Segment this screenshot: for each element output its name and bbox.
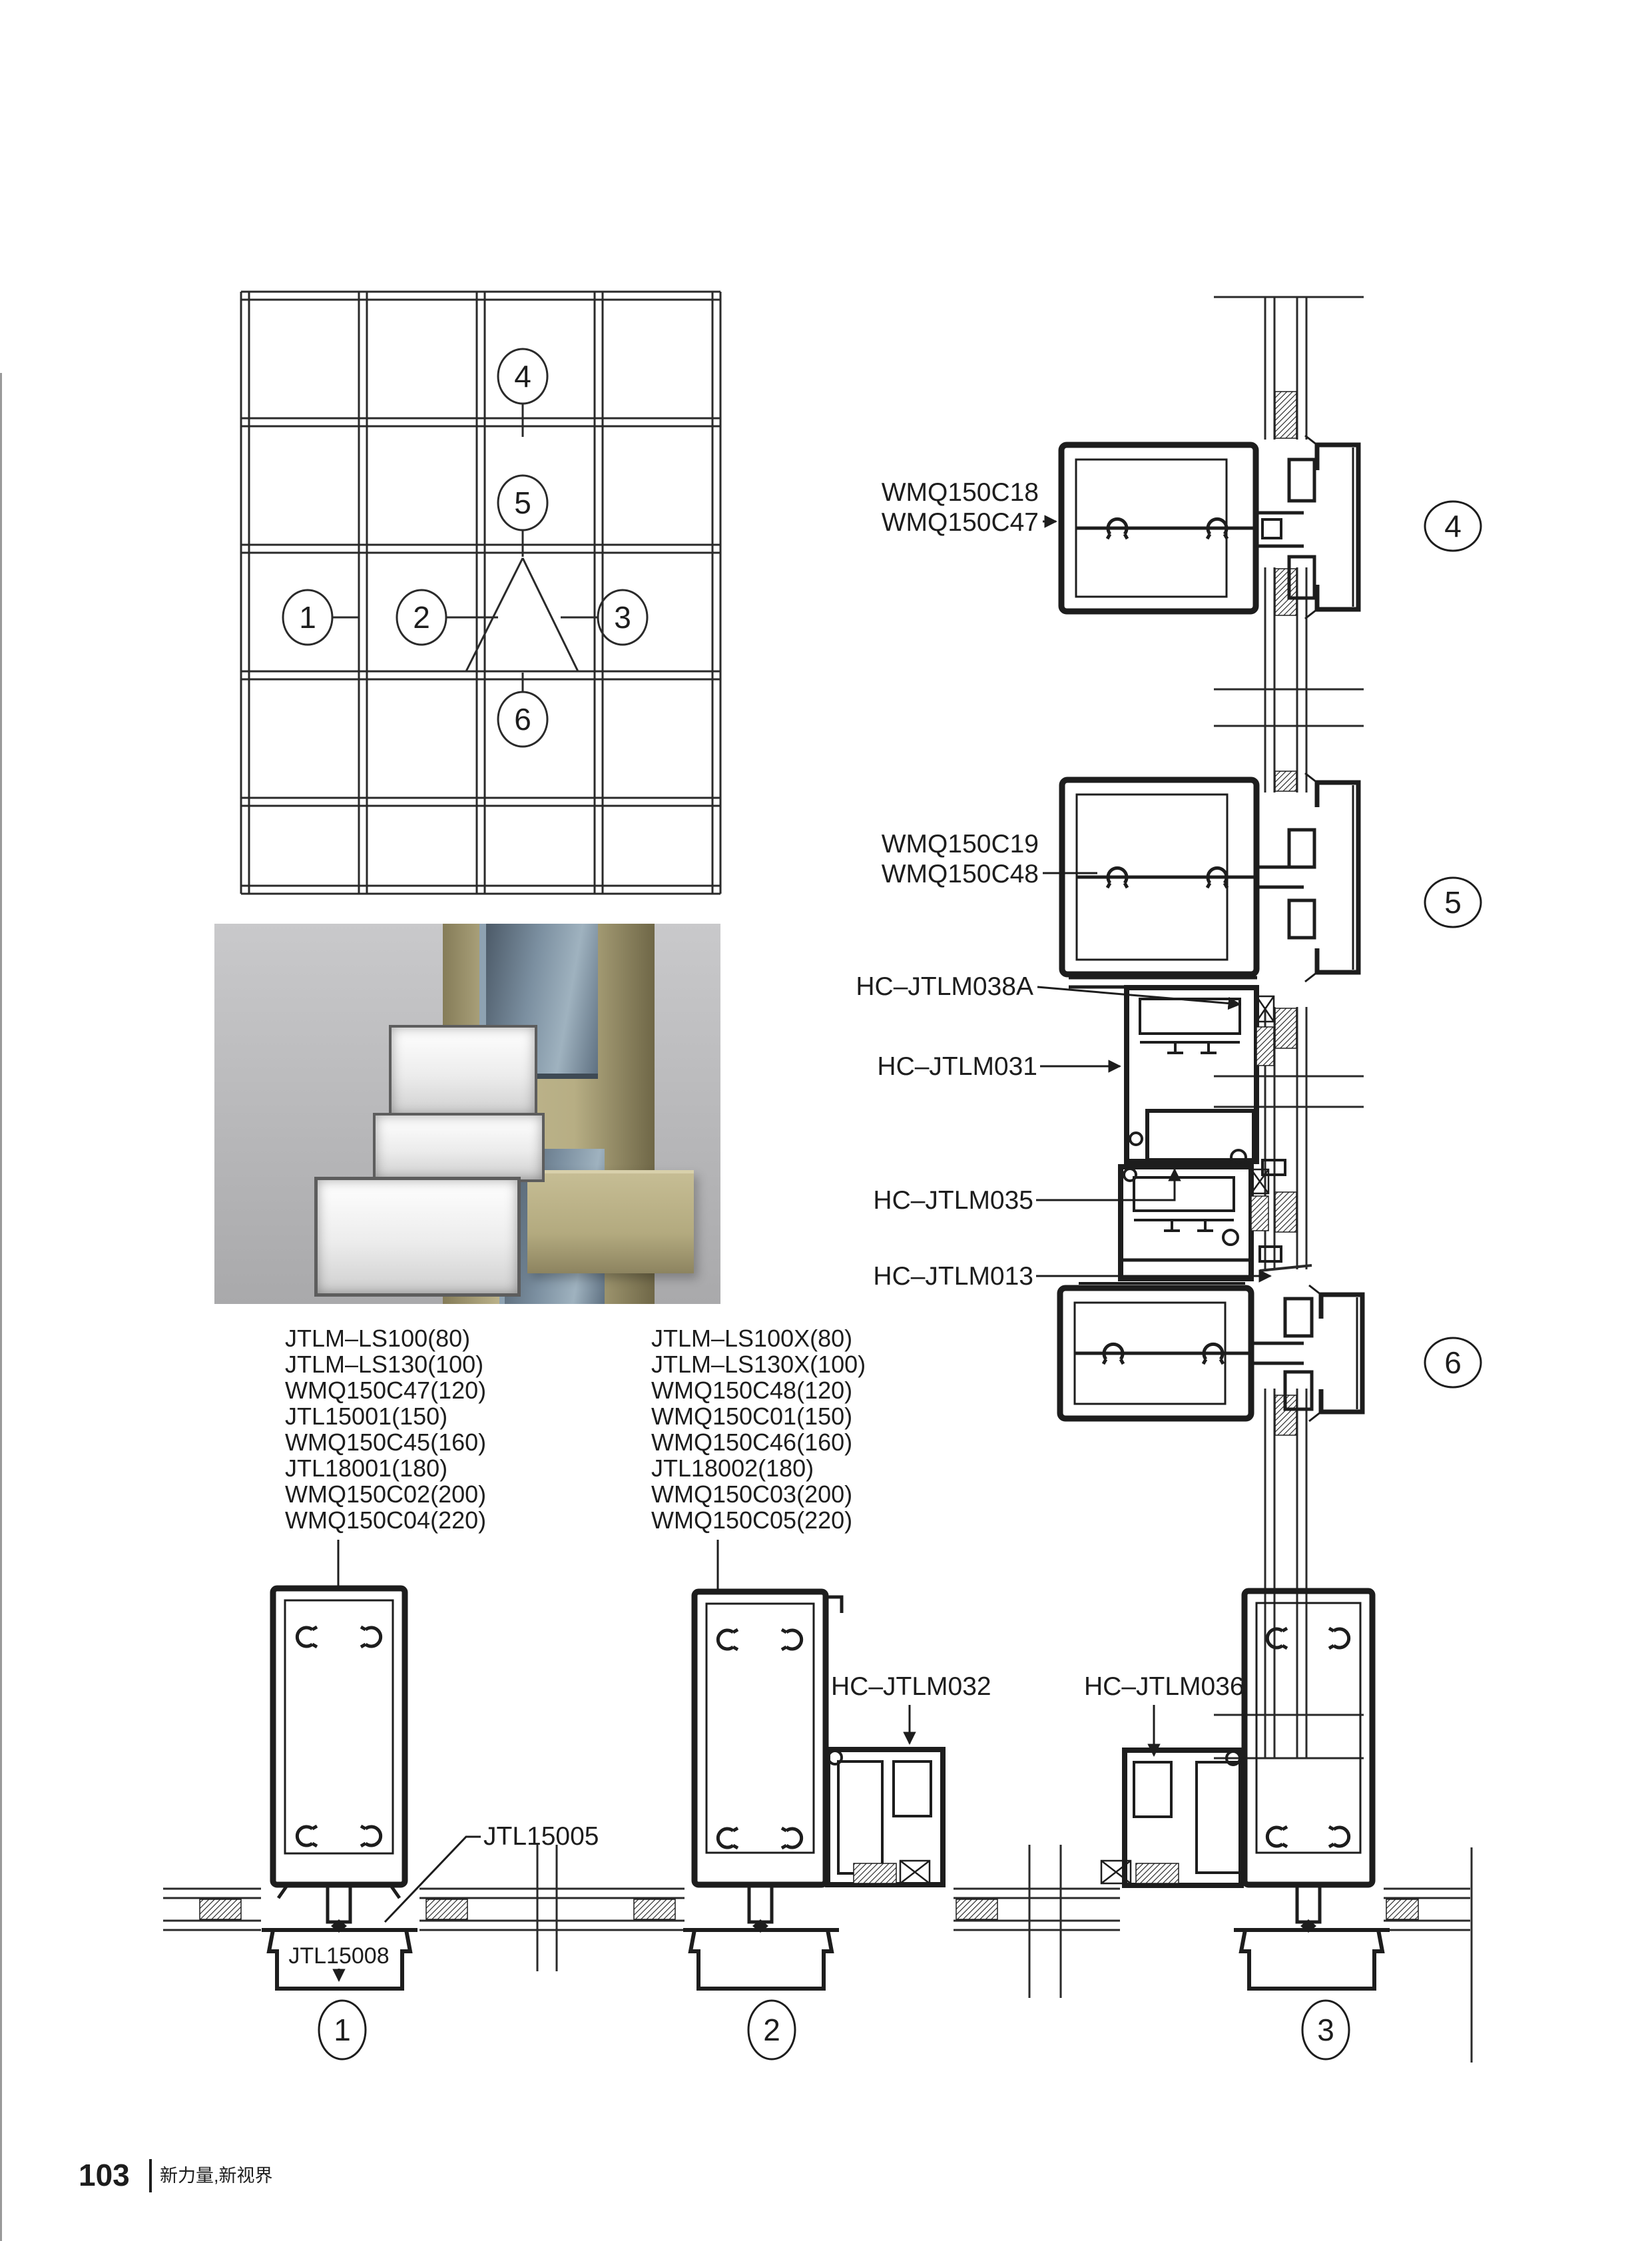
stack-spigot <box>328 1886 350 1922</box>
callout-3-number: 3 <box>614 600 631 635</box>
detail6-circle-number: 6 <box>1444 1345 1462 1380</box>
mullion-profile-outer <box>273 1588 405 1885</box>
elevation-diagram: 4 5 6 1 2 3 <box>241 292 720 894</box>
detail2-list-line: JTLM–LS130X(100) <box>651 1351 866 1378</box>
vent-triangle-symbol <box>466 558 578 671</box>
detail1-list-line: JTLM–LS100(80) <box>285 1325 470 1352</box>
stack-spigot <box>1297 1886 1320 1922</box>
detail2-list-line: WMQ150C01(150) <box>651 1403 852 1430</box>
glass-band-lines <box>163 1889 1470 1930</box>
detail5-leader-bottom <box>1036 1169 1175 1200</box>
detail5-label-1: WMQ150C19 <box>882 830 1039 858</box>
detail2-list-line: WMQ150C05(220) <box>651 1506 852 1534</box>
detail1-list-line: WMQ150C47(120) <box>285 1377 486 1404</box>
screw-port-icon <box>782 1828 802 1848</box>
detail5-label-2: WMQ150C48 <box>882 860 1039 888</box>
base-cover-profile <box>683 1930 839 1989</box>
vent-frame-web <box>1134 1220 1234 1231</box>
screw-port-icon <box>718 1828 738 1848</box>
detail1-circle-number: 1 <box>334 2013 351 2047</box>
elevation-callout-2: 2 <box>397 590 446 645</box>
detail6-part-label: HC–JTLM013 <box>873 1262 1033 1291</box>
detail2-list-line: JTL18002(180) <box>651 1454 814 1482</box>
detail4-circle-number: 4 <box>1444 509 1462 543</box>
detail-callout-5: 5 <box>1425 878 1481 927</box>
screw-port-icon <box>718 1630 738 1650</box>
detail2-list-line: WMQ150C48(120) <box>651 1377 852 1404</box>
elevation-transoms <box>241 292 720 894</box>
detail-2-section: JTLM–LS100X(80) JTLM–LS130X(100) WMQ150C… <box>651 1325 991 2059</box>
vent-frame-web <box>1140 1042 1240 1053</box>
glass-spacer-hatch <box>1275 392 1296 1435</box>
detail5-circle-number: 5 <box>1444 885 1462 920</box>
callout-leaders <box>332 403 599 691</box>
vent-chamber-left <box>1134 1762 1171 1817</box>
vertical-glass-runs <box>1214 297 1364 1758</box>
mullion-profile-outer <box>1244 1591 1372 1885</box>
vent-chamber-right <box>1197 1762 1240 1873</box>
detail1-list-line: WMQ150C02(200) <box>285 1480 486 1508</box>
band-spacer-hatch <box>200 1899 1418 1919</box>
detail-callout-4: 4 <box>1425 501 1481 551</box>
detail2-list-line: WMQ150C03(200) <box>651 1480 852 1508</box>
detail4-label-2: WMQ150C47 <box>882 508 1039 537</box>
detail-callout-1: 1 <box>319 2001 366 2059</box>
detail5-part-mid-label: HC–JTLM031 <box>877 1052 1037 1081</box>
elevation-mullions <box>241 292 720 894</box>
detail2-list-line: JTLM–LS100X(80) <box>651 1325 852 1352</box>
screw-port-icon <box>782 1630 802 1650</box>
screw-port-icon <box>361 1826 381 1846</box>
callout-2-number: 2 <box>413 600 430 635</box>
screw-port-icon <box>297 1826 317 1846</box>
page-footer: 103 新力量,新视界 <box>79 2158 273 2192</box>
vent-chamber-left <box>838 1761 882 1873</box>
detail1-list-line: JTL18001(180) <box>285 1454 447 1482</box>
callout-6-number: 6 <box>514 702 531 737</box>
detail2-part-label: HC–JTLM032 <box>831 1672 991 1701</box>
cover-cap-inner <box>1309 1285 1357 1421</box>
detail1-gasket-label: JTL15005 <box>483 1822 599 1851</box>
elevation-callout-5: 5 <box>498 476 547 530</box>
detail5-part-bottom-label: HC–JTLM035 <box>873 1186 1033 1215</box>
elevation-callout-6: 6 <box>498 692 547 747</box>
glass-clamp-lower <box>1289 900 1314 938</box>
detail1-list-line: JTL15001(150) <box>285 1403 447 1430</box>
mullion-profile-inner <box>285 1600 393 1853</box>
mullion-profile-inner <box>706 1604 814 1853</box>
detail-3-section: HC–JTLM036 3 <box>1084 1591 1390 2059</box>
gasket-hatch <box>1251 1196 1268 1231</box>
screw-glyph-icon <box>1124 1169 1136 1181</box>
detail2-circle-number: 2 <box>763 2013 780 2047</box>
mullion-profile-inner <box>1256 1603 1360 1853</box>
clamp-glyph-icon <box>1223 1230 1238 1245</box>
page-number: 103 <box>79 2158 130 2192</box>
detail-callout-3: 3 <box>1302 2001 1349 2059</box>
screw-port-icon <box>361 1627 381 1647</box>
screw-port-icon <box>1267 1827 1287 1847</box>
stack-spigot <box>749 1886 772 1922</box>
spigot-block <box>1262 519 1281 538</box>
drawing-canvas: 4 5 6 1 2 3 <box>0 0 1652 2241</box>
detail5-part-top-label: HC–JTLM038A <box>856 972 1033 1001</box>
callout-5-number: 5 <box>514 485 531 520</box>
glass-clamp-upper <box>1285 1299 1312 1336</box>
gasket-hatch <box>1136 1863 1179 1883</box>
vent-frame-chamber <box>1140 999 1240 1034</box>
detail3-part-label: HC–JTLM036 <box>1084 1672 1244 1701</box>
screw-port-icon <box>1329 1827 1349 1847</box>
detail2-list-line: WMQ150C46(160) <box>651 1429 852 1456</box>
detail4-label-1: WMQ150C18 <box>882 478 1039 507</box>
vent-lower-chamber <box>1147 1111 1254 1160</box>
screw-port-icon <box>297 1627 317 1647</box>
detail1-cover-label: JTL15008 <box>288 1943 389 1969</box>
detail3-circle-number: 3 <box>1317 2013 1334 2047</box>
screw-port-icon <box>1267 1628 1287 1648</box>
vent-frame-chamber <box>1134 1177 1234 1211</box>
screw-port-icon <box>1329 1628 1349 1648</box>
detail1-list-line: WMQ150C04(220) <box>285 1506 486 1534</box>
setting-block-xbox <box>900 1861 930 1883</box>
vent-frame-outer <box>1121 1167 1251 1279</box>
elevation-callout-1: 1 <box>283 590 332 645</box>
glass-clamp-upper <box>1289 460 1314 501</box>
mullion-profile-outer <box>694 1592 826 1885</box>
gasket-hatch <box>1256 1027 1274 1066</box>
callout-4-number: 4 <box>514 359 531 394</box>
detail-callout-2: 2 <box>748 2001 795 2059</box>
detail-1-section: JTLM–LS100(80) JTLM–LS130(100) WMQ150C47… <box>262 1325 599 2059</box>
spigot-tongue <box>1257 867 1304 887</box>
gasket-plate <box>1260 1247 1281 1261</box>
screw-glyph-icon <box>1130 1133 1142 1145</box>
detail1-list-line: JTLM–LS130(100) <box>285 1351 483 1378</box>
detail1-list-line: WMQ150C45(160) <box>285 1429 486 1456</box>
cover-cap-inner <box>1305 773 1353 982</box>
elevation-callout-3: 3 <box>598 590 647 645</box>
detail-5-section: WMQ150C19 WMQ150C48 HC–JTLM038A HC–JTLM0… <box>856 773 1481 1215</box>
glass-bottom-edge <box>1260 1265 1312 1271</box>
elevation-callout-4: 4 <box>498 349 547 404</box>
cover-cap-inner <box>1305 436 1353 619</box>
detail-4-section: WMQ150C18 WMQ150C47 4 <box>882 436 1481 619</box>
gasket-hatch <box>854 1863 896 1883</box>
base-cover-profile <box>1234 1930 1390 1989</box>
vent-chamber-right <box>894 1761 931 1816</box>
glass-clamp-upper <box>1289 830 1314 867</box>
catalog-page: 4 5 6 1 2 3 <box>0 0 1652 2241</box>
spigot-tongue <box>1252 1343 1304 1363</box>
footer-tagline: 新力量,新视界 <box>160 2166 273 2186</box>
detail-callout-6: 6 <box>1425 1338 1481 1387</box>
callout-1-number: 1 <box>299 600 316 635</box>
